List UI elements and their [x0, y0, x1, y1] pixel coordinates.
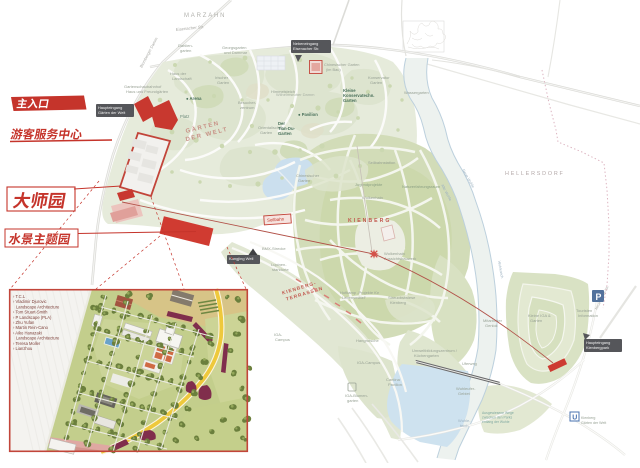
svg-text:zwischen den Parks: zwischen den Parks [482, 416, 512, 420]
svg-text:Wassergarten: Wassergarten [404, 90, 429, 95]
svg-text:Platz: Platz [180, 114, 189, 119]
svg-text:IGA-Campus: IGA-Campus [357, 360, 380, 365]
svg-text:Gärten der Welt: Gärten der Welt [98, 110, 126, 115]
svg-text:Information: Information [578, 313, 598, 318]
svg-text:P: P [596, 292, 602, 302]
svg-text:Pavillon: Pavillon [388, 382, 402, 387]
svg-text:Garten: Garten [298, 178, 310, 183]
svg-text:Campus: Campus [275, 337, 290, 342]
svg-text:Küchengarten: Küchengarten [414, 353, 439, 358]
svg-text:Lebensmittel“: Lebensmittel“ [342, 295, 367, 300]
svg-text:garten: garten [180, 48, 191, 53]
svg-text:Garten: Garten [217, 80, 229, 85]
svg-text:Kienberg: Kienberg [581, 416, 595, 420]
svg-text:Kienbergpark: Kienbergpark [586, 345, 609, 350]
svg-text:● Pavilion: ● Pavilion [298, 112, 318, 117]
svg-text:Kienberg: Kienberg [390, 300, 406, 305]
svg-text:Garten: Garten [370, 80, 382, 85]
svg-text:HELLERSDORF: HELLERSDORF [505, 171, 565, 177]
svg-text:(im Bau): (im Bau) [326, 67, 341, 72]
svg-text:MARZAHN: MARZAHN [184, 13, 226, 19]
svg-text:KIENBERG: KIENBERG [348, 218, 391, 224]
svg-text:Garten: Garten [278, 131, 292, 136]
svg-text:standorte: standorte [272, 267, 289, 272]
svg-text:Gärten der Welt: Gärten der Welt [581, 421, 606, 425]
svg-text:Genlok: Genlok [485, 323, 498, 328]
svg-text:Hangrutsche: Hangrutsche [356, 338, 379, 343]
svg-text:Wolkenhain: Wolkenhain [362, 195, 383, 200]
svg-text:Naturerfahrungsraum: Naturerfahrungsraum [402, 184, 441, 189]
svg-text:Haus und Freundgärten: Haus und Freundgärten [126, 89, 168, 94]
svg-text:teich: teich [460, 423, 468, 428]
svg-text:zentrum: zentrum [240, 105, 255, 110]
svg-text:Uferweg: Uferweg [462, 361, 477, 366]
svg-text:BMX-Strecke: BMX-Strecke [262, 246, 286, 251]
svg-text:Gebiet: Gebiet [458, 391, 471, 396]
svg-text:und Dammar: und Dammar [224, 50, 248, 55]
svg-text:Garten: Garten [343, 98, 357, 103]
svg-text:U: U [572, 415, 577, 422]
svg-text:Landschaft: Landschaft [172, 76, 192, 81]
svg-text:Garten: Garten [530, 318, 542, 323]
svg-text:● Arena: ● Arena [186, 96, 202, 101]
svg-text:Eisenacher Str.: Eisenacher Str. [293, 46, 319, 51]
svg-text:Seilbahnstation: Seilbahnstation [368, 160, 395, 165]
svg-text:Jugendprojekte: Jugendprojekte [355, 182, 383, 187]
svg-text:entlang der Wuhle: entlang der Wuhle [482, 420, 510, 424]
svg-text:Garten: Garten [260, 130, 272, 135]
svg-text:Ausgewiesene Wege: Ausgewiesene Wege [482, 411, 514, 415]
svg-text:garten: garten [347, 398, 358, 403]
svg-text:› Lianzhou: › Lianzhou [13, 346, 33, 351]
svg-text:Wilhelmsruher Damm: Wilhelmsruher Damm [276, 92, 315, 97]
